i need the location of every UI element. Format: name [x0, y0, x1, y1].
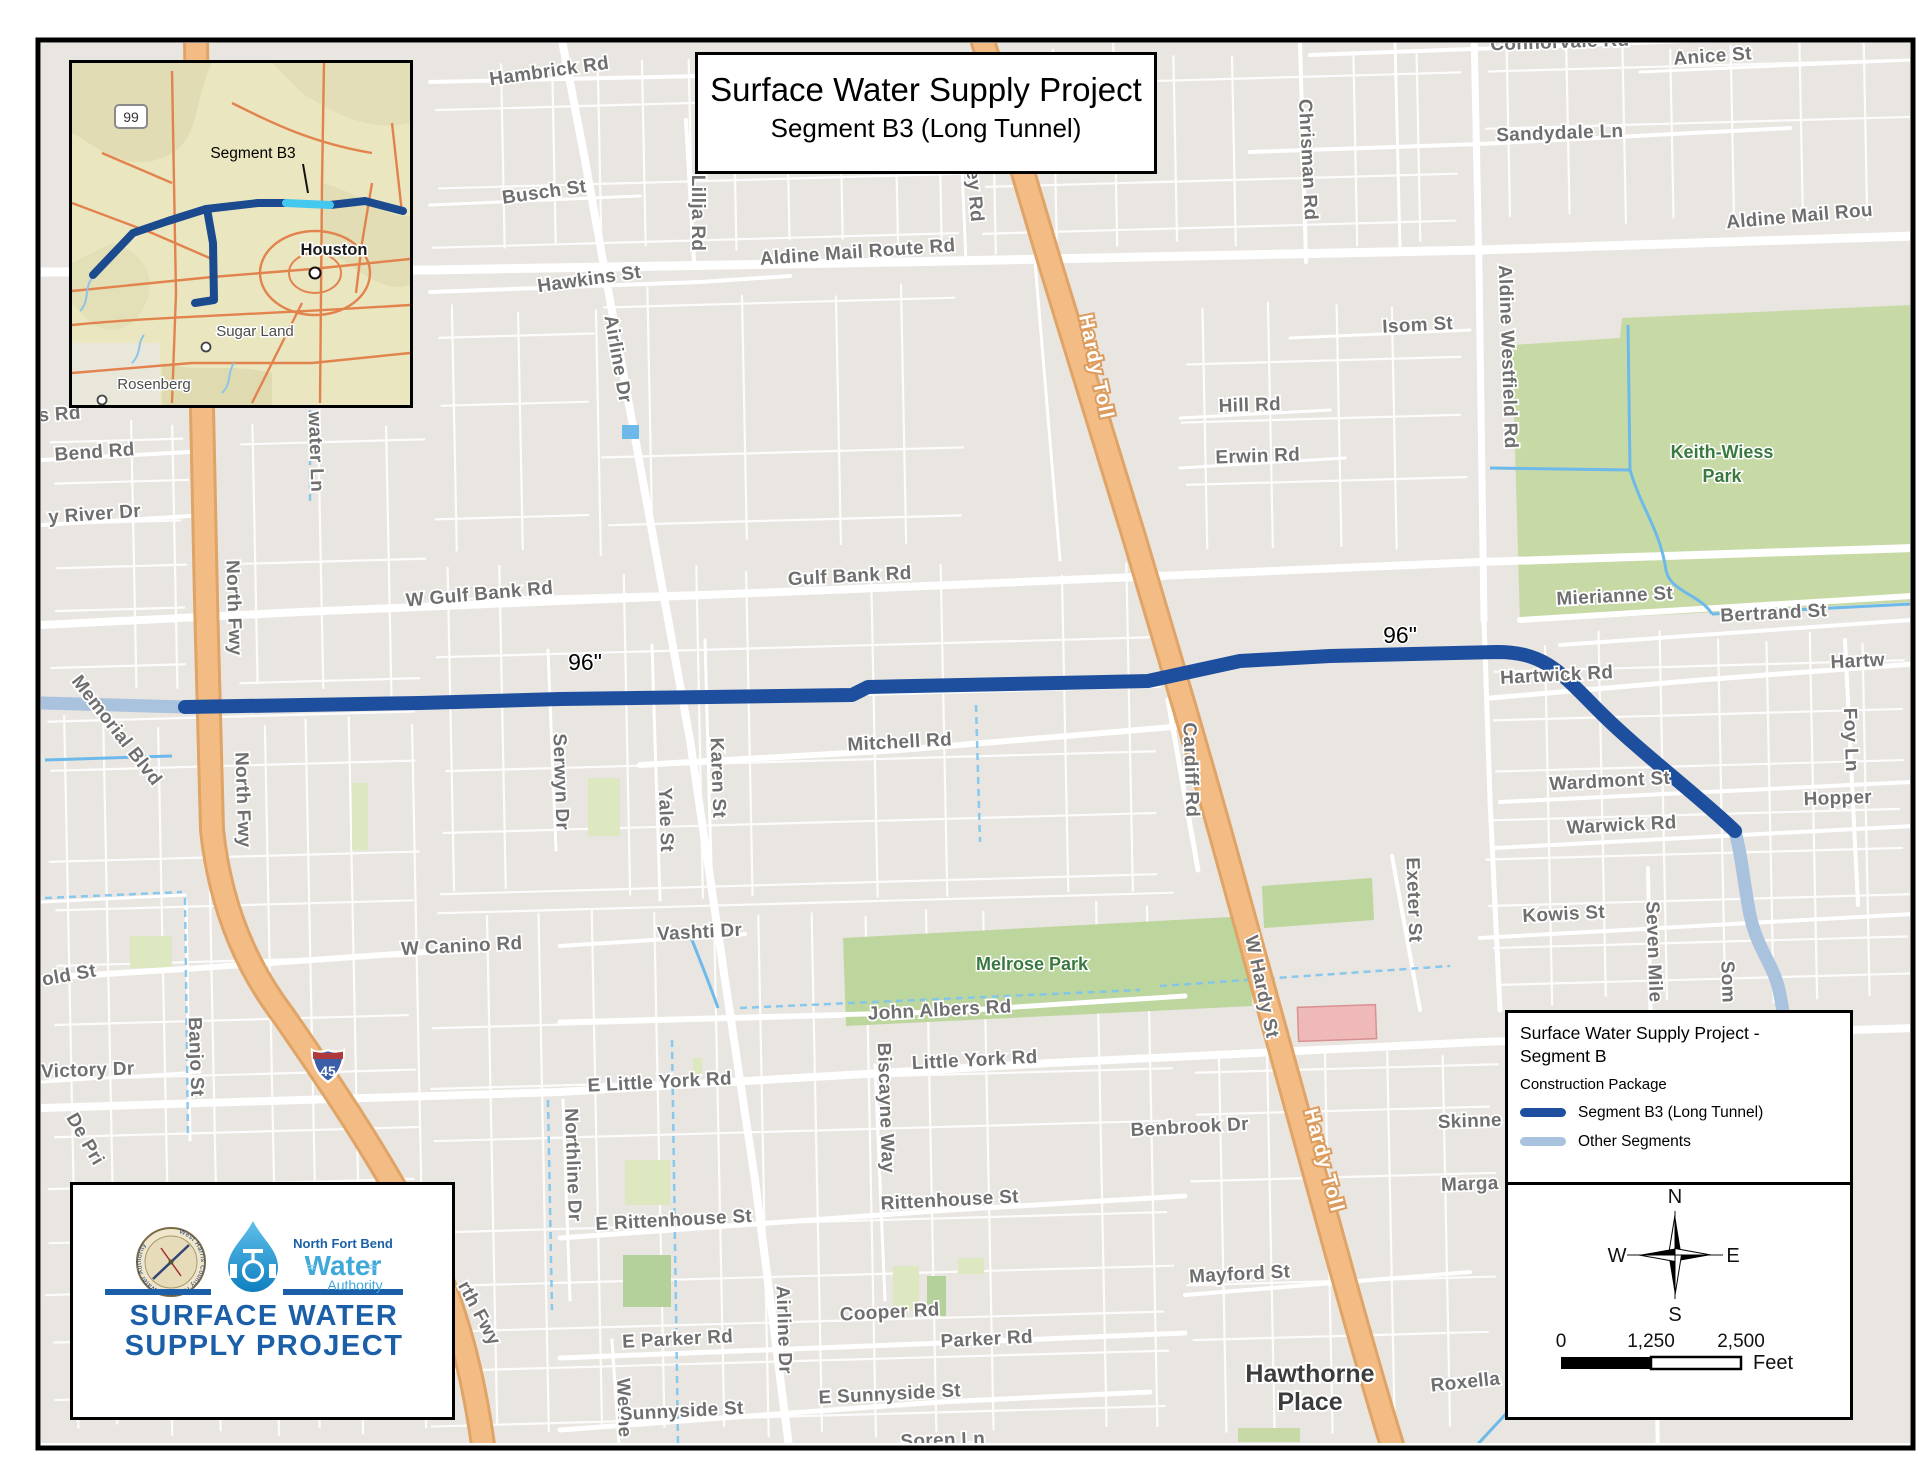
highway-99-shield: 99 [115, 105, 147, 128]
scale-bar-filled-half [1561, 1357, 1651, 1369]
segment-b3-line-swatch [1520, 1108, 1566, 1117]
inset-map: 99 Segment B3 Houston Sugar Land Rosenbe… [69, 60, 413, 408]
street-label: Serwyn Dr [548, 733, 572, 831]
street-label: Exeter St [1402, 857, 1426, 943]
street-label: Kowis St [1522, 902, 1606, 927]
street-label: North Fwy [230, 752, 254, 848]
street-label: water Ln [304, 410, 328, 492]
street-label: 96" [1383, 622, 1417, 648]
scale-tick-0: 0 [1556, 1331, 1567, 1352]
org-name-sub: Authority [327, 1277, 382, 1293]
street-label: Som [1716, 960, 1738, 1003]
scale-bar: 0 1,250 2,500 Feet [1556, 1331, 1794, 1374]
other-segments-line-swatch [1520, 1137, 1566, 1146]
street-label: Park [1702, 466, 1742, 486]
street-label: Seven Mile [1641, 901, 1666, 1003]
compass-east-label: E [1726, 1245, 1739, 1267]
street-label: Vashti Dr [657, 920, 743, 945]
inset-map-canvas: 99 Segment B3 Houston Sugar Land Rosenbe… [72, 63, 410, 405]
compass-north-label: N [1668, 1186, 1682, 1208]
street-label: Marga [1441, 1173, 1499, 1196]
street-label: Foy Ln [1839, 707, 1862, 772]
map-subtitle: Segment B3 (Long Tunnel) [698, 113, 1154, 144]
legend-item-label: Other Segments [1578, 1133, 1691, 1151]
compass-rose: N E S W [1608, 1186, 1740, 1326]
wave-mark-left: ≈ [307, 1259, 315, 1276]
compass-scale-box: N E S W 0 1,250 2,500 Feet [1505, 1182, 1853, 1420]
street-label: Hill Rd [1218, 394, 1281, 417]
project-title-line1: SURFACE WATER [130, 1300, 399, 1332]
street-label: Sandydale Ln [1496, 121, 1624, 146]
compass-scale-canvas: N E S W 0 1,250 2,500 Feet [1508, 1185, 1850, 1417]
title-box: Surface Water Supply Project Segment B3 … [695, 52, 1157, 174]
street-label: North Fwy [221, 560, 245, 656]
rosenberg-marker [98, 396, 107, 405]
inset-pipeline-segment-b3-highlight [286, 203, 330, 205]
interstate-45-number: 45 [320, 1063, 336, 1079]
project-title-line2: SUPPLY PROJECT [125, 1330, 404, 1362]
street-label: Airline Dr [771, 1285, 795, 1375]
houston-marker [310, 268, 321, 279]
logo-rule-left [105, 1289, 211, 1295]
street-label: Keith-Wiess [1671, 442, 1774, 462]
street-label: Karen St [706, 737, 730, 819]
street-label: Isom St [1382, 313, 1454, 338]
street-label: Victory Dr [41, 1058, 135, 1082]
rosenberg-label: Rosenberg [117, 376, 190, 393]
scale-bar-empty-half [1651, 1357, 1741, 1369]
map-title: Surface Water Supply Project [698, 71, 1154, 109]
street-label: Cardiff Rd [1178, 722, 1202, 818]
inset-segment-label: Segment B3 [210, 145, 295, 162]
shield-99-label: 99 [123, 109, 139, 125]
pipeline-other-segment-west [42, 703, 185, 707]
segment-b3-leader-line [303, 164, 308, 193]
street-label: Hopper [1803, 787, 1872, 810]
street-label: Erwin Rd [1215, 445, 1300, 469]
compass-west-label: W [1608, 1245, 1627, 1267]
street-label: Skinne [1437, 1110, 1502, 1133]
street-label: Place [1277, 1388, 1342, 1416]
legend-title: Surface Water Supply Project - Segment B [1520, 1022, 1838, 1068]
project-logo-box: West Harris County Regional Water Author… [70, 1182, 455, 1420]
north-fort-bend-wordmark: North Fort Bend Water ≈ ≈ Authority [293, 1236, 393, 1293]
sugar-land-label: Sugar Land [216, 323, 294, 340]
street-label: 96" [568, 649, 602, 675]
west-harris-county-seal: West Harris County Regional Water Author… [136, 1228, 206, 1297]
sugar-land-marker [202, 343, 211, 352]
scale-unit-label: Feet [1753, 1352, 1793, 1374]
legend-title-line2: Segment B [1520, 1046, 1607, 1066]
legend-item-label: Segment B3 (Long Tunnel) [1578, 1104, 1763, 1122]
houston-label: Houston [301, 241, 368, 259]
wave-mark-right: ≈ [369, 1259, 377, 1276]
legend-item-segment-b3: Segment B3 (Long Tunnel) [1520, 1104, 1838, 1122]
street-label: Hartw [1830, 650, 1885, 674]
buildings-layer [1297, 1005, 1376, 1042]
street-label: Hawthorne [1245, 1360, 1374, 1388]
legend: Surface Water Supply Project - Segment B… [1505, 1010, 1853, 1185]
street-label: Northline Dr [560, 1108, 585, 1222]
street-label: Banjo St [184, 1017, 208, 1098]
compass-south-label: S [1668, 1304, 1681, 1326]
scale-tick-1250: 1,250 [1627, 1331, 1675, 1352]
legend-subtitle: Construction Package [1520, 1076, 1838, 1093]
org-name-small: North Fort Bend [293, 1236, 393, 1251]
legend-item-other-segments: Other Segments [1520, 1133, 1838, 1151]
scale-tick-2500: 2,500 [1717, 1331, 1765, 1352]
street-label: Yale St [654, 787, 677, 852]
street-label: Lillja Rd [687, 175, 708, 252]
map-sheet: 45 Hambrick RdBusch StHawkins StLillja R… [0, 0, 1920, 1483]
project-logo: West Harris County Regional Water Author… [73, 1185, 452, 1417]
street-label: Melrose Park [976, 954, 1089, 974]
water-drop-valve-icon [228, 1221, 278, 1292]
legend-title-line1: Surface Water Supply Project - [1520, 1023, 1760, 1043]
